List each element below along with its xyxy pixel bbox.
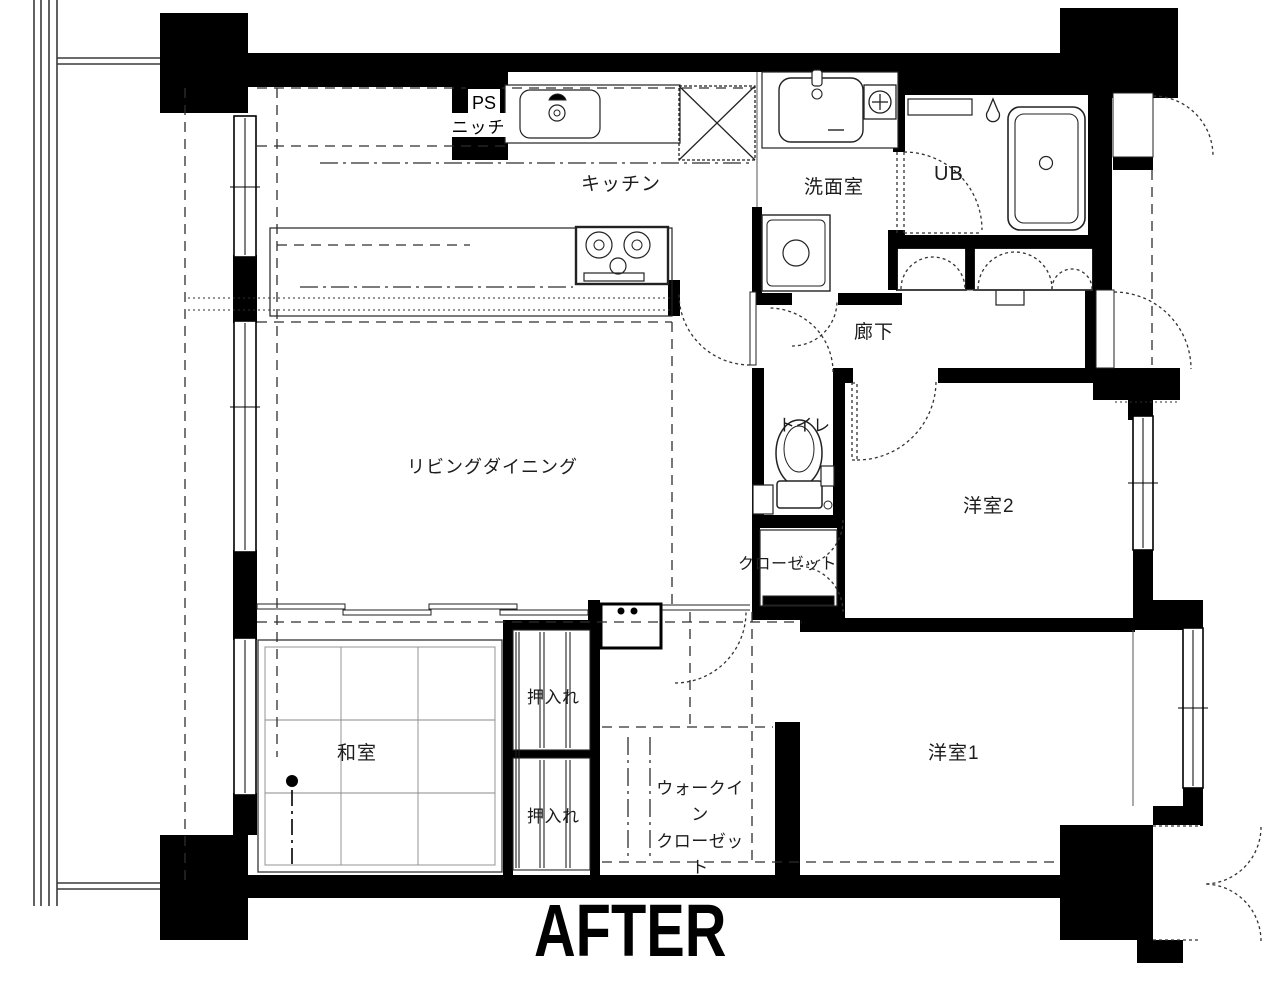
room-label-japanese-room: 和室 <box>337 744 377 763</box>
room-label-kitchen: キッチン <box>581 175 661 194</box>
kitchen-island-counter <box>270 227 672 316</box>
hallway-closets <box>897 248 1093 290</box>
room-label-living-dining: リビングダイニング <box>407 458 578 476</box>
plan-title: AFTER <box>534 894 726 968</box>
vestibule-door-arc <box>675 612 746 683</box>
balcony-railing <box>34 0 161 906</box>
niche-label: ニッチ <box>452 113 506 138</box>
hall-cabinet <box>601 604 661 648</box>
ps-label: PS <box>472 93 496 114</box>
kitchen-sink-counter <box>505 85 680 143</box>
floor-plan-drawing <box>0 0 1280 987</box>
room-label-toilet: トイレ <box>778 417 831 434</box>
room-label-washroom: 洗面室 <box>804 178 864 197</box>
room-label-oshiire-upper: 押入れ <box>527 689 580 706</box>
room-label-western-room-2: 洋室2 <box>963 497 1015 516</box>
refrigerator-space <box>679 86 755 160</box>
laundry-faucet <box>864 85 896 119</box>
room-label-hallway: 廊下 <box>854 323 894 342</box>
gas-stove <box>576 227 668 284</box>
double-door-arc-lower <box>1204 884 1261 941</box>
niche-label-box: ニッチ <box>451 113 506 137</box>
room-label-walk-in-closet: ウォークイン クローゼット <box>650 776 750 881</box>
room-label-unit-bath: UB <box>934 164 964 184</box>
bedroom2-door-arc <box>857 381 936 460</box>
washing-machine-pan <box>762 215 830 291</box>
walk-in-closet-line2: クローゼット <box>650 829 750 882</box>
toilet-door-arc <box>769 308 833 372</box>
bathtub <box>1008 107 1085 230</box>
porch-door-arc <box>1153 96 1213 156</box>
walk-in-closet-line1: ウォークイン <box>650 776 750 829</box>
double-door-arc-upper <box>1204 827 1261 884</box>
room-label-closet: クローゼット <box>738 557 837 573</box>
washroom-door-arc <box>792 301 837 346</box>
bedroom2-door-leaf <box>852 383 857 460</box>
ld-door-arc <box>679 294 750 365</box>
sliding-door-tracks <box>257 604 750 615</box>
tatami-grid <box>258 640 502 872</box>
room-label-oshiire-lower: 押入れ <box>527 808 580 825</box>
floor-plan: PS ニッチ キッチン 洗面室 UB 廊下 トイレ リビングダイニング 洋室2 … <box>0 0 1280 987</box>
oshiire-closets <box>513 630 590 870</box>
room-label-western-room-1: 洋室1 <box>928 744 980 763</box>
tokonoma-marker <box>286 775 298 866</box>
